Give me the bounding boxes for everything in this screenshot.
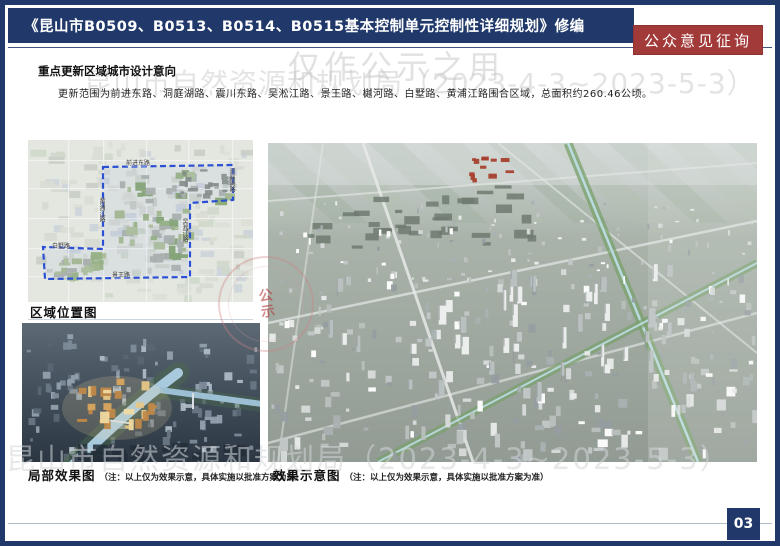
overall-render-caption-note: （注：以上仅为效果示意，具体实施以批准方案为准）	[345, 473, 549, 483]
local-render-caption: 局部效果图（注：以上仅为效果示意，具体实施以批准方案为准）	[28, 465, 304, 484]
footer-divider	[8, 523, 772, 524]
seal-text: 公示	[254, 287, 278, 321]
local-render-figure	[22, 323, 260, 462]
header-bar: 《昆山市B0509、B0513、B0514、B0515基本控制单元控制性详细规划…	[8, 8, 634, 43]
road-label-baishu: 白墅路	[52, 244, 70, 250]
location-map-caption: 区域位置图	[30, 302, 98, 321]
overall-render-caption: 效果示意图（注：以上仅为效果示意，具体实施以批准方案为准）	[273, 465, 549, 484]
page-number: 03	[727, 508, 760, 540]
overall-render-figure	[268, 143, 757, 462]
overall-render-image	[268, 143, 757, 462]
watermark-public-notice: 仅作公示之用	[288, 42, 504, 88]
local-render-image	[22, 323, 260, 462]
road-label-dongtinghu: 洞庭湖路	[228, 168, 234, 192]
overall-render-caption-title: 效果示意图	[273, 468, 341, 483]
section-heading: 重点更新区域城市设计意向	[38, 63, 176, 79]
road-label-jingwang: 景王路	[112, 273, 130, 279]
notice-page: 《昆山市B0509、B0513、B0514、B0515基本控制单元控制性详细规划…	[0, 0, 780, 546]
road-label-qianjin: 前进东路	[126, 161, 150, 167]
local-render-caption-title: 局部效果图	[28, 468, 96, 483]
public-consultation-badge: 公众意见征询	[633, 25, 763, 55]
location-map-caption-title: 区域位置图	[30, 305, 98, 320]
road-label-huangpujiang: 黄浦江路	[98, 198, 104, 222]
document-title: 《昆山市B0509、B0513、B0514、B0515基本控制单元控制性详细规划…	[24, 15, 585, 36]
scope-description: 更新范围为前进东路、洞庭湖路、震川东路、吴淞江路、景王路、樾河路、白墅路、黄浦江…	[38, 85, 738, 100]
road-label-wusongjiang: 吴淞江路	[181, 218, 187, 242]
